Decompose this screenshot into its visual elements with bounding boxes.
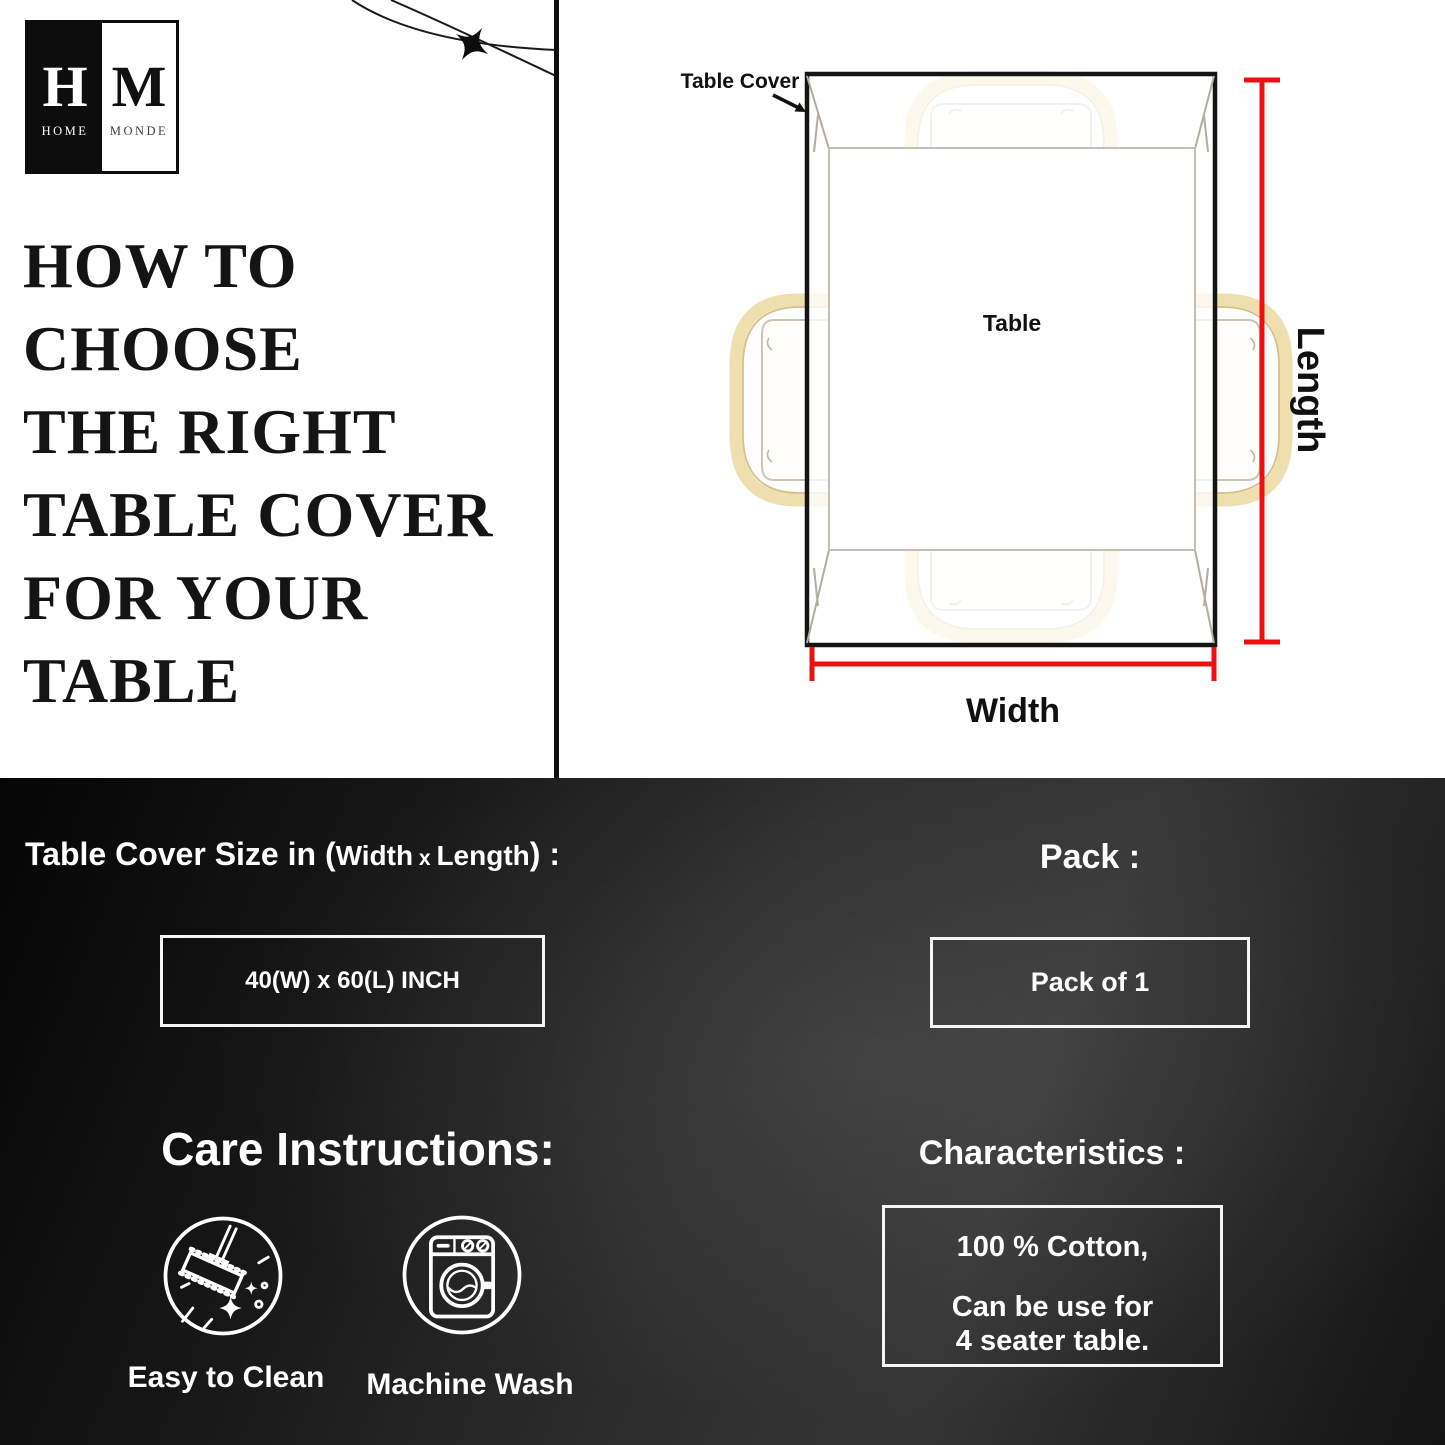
title-line: THE RIGHT (23, 390, 493, 473)
pack-heading: Pack : (950, 838, 1230, 877)
logo-word-monde: MONDE (110, 124, 168, 139)
callout-arrow-icon (773, 95, 806, 112)
title-line: TABLE COVER (23, 473, 493, 556)
care-heading: Care Instructions: (138, 1122, 578, 1176)
title-line: TABLE (23, 639, 493, 722)
pack-value-box: Pack of 1 (930, 937, 1250, 1028)
title-line: HOW TO (23, 224, 493, 307)
table-measurement-diagram: Table Table Cover Length Width (556, 0, 1445, 778)
brand-logo: H HOME M MONDE (25, 20, 179, 174)
logo-right-half: M MONDE (102, 23, 176, 171)
characteristics-box: 100 % Cotton, Can be use for 4 seater ta… (882, 1205, 1223, 1367)
logo-letter-h: H (42, 58, 87, 116)
size-heading: Table Cover Size in (Width x Length) : (25, 836, 560, 873)
width-label: Width (966, 692, 1060, 730)
size-heading-x: x (413, 847, 436, 870)
size-heading-width: Width (336, 840, 414, 871)
table-cover-label: Table Cover (681, 70, 800, 93)
title-line: CHOOSE (23, 307, 493, 390)
characteristics-line: 4 seater table. (956, 1324, 1149, 1358)
washing-machine-icon (396, 1209, 528, 1341)
characteristics-line: Can be use for (952, 1290, 1153, 1324)
table-rect (829, 148, 1195, 550)
logo-left-half: H HOME (28, 23, 102, 171)
title-line: FOR YOUR (23, 556, 493, 639)
characteristics-line: 100 % Cotton, (957, 1230, 1149, 1264)
product-infographic: H HOME M MONDE HOW TO CHOOSE THE RIGHT T… (0, 0, 1445, 1445)
specs-section: Table Cover Size in (Width x Length) : 4… (0, 778, 1445, 1445)
width-dimension-arrow (812, 647, 1214, 681)
size-heading-part: Table Cover Size in ( (25, 836, 336, 872)
length-label: Length (1289, 327, 1331, 454)
logo-letter-m: M (112, 58, 167, 116)
care-label-easy-to-clean: Easy to Clean (96, 1361, 356, 1395)
table-label: Table (983, 310, 1041, 336)
top-section: H HOME M MONDE HOW TO CHOOSE THE RIGHT T… (0, 0, 1445, 778)
page-title: HOW TO CHOOSE THE RIGHT TABLE COVER FOR … (23, 224, 493, 722)
size-heading-part: ) : (530, 836, 560, 872)
size-value: 40(W) x 60(L) INCH (245, 967, 460, 995)
characteristics-heading: Characteristics : (912, 1134, 1192, 1173)
size-heading-length: Length (436, 840, 529, 871)
logo-word-home: HOME (42, 124, 89, 139)
care-label-machine-wash: Machine Wash (340, 1368, 600, 1402)
mop-icon (157, 1210, 289, 1342)
pack-value: Pack of 1 (1031, 967, 1150, 998)
size-value-box: 40(W) x 60(L) INCH (160, 935, 545, 1027)
